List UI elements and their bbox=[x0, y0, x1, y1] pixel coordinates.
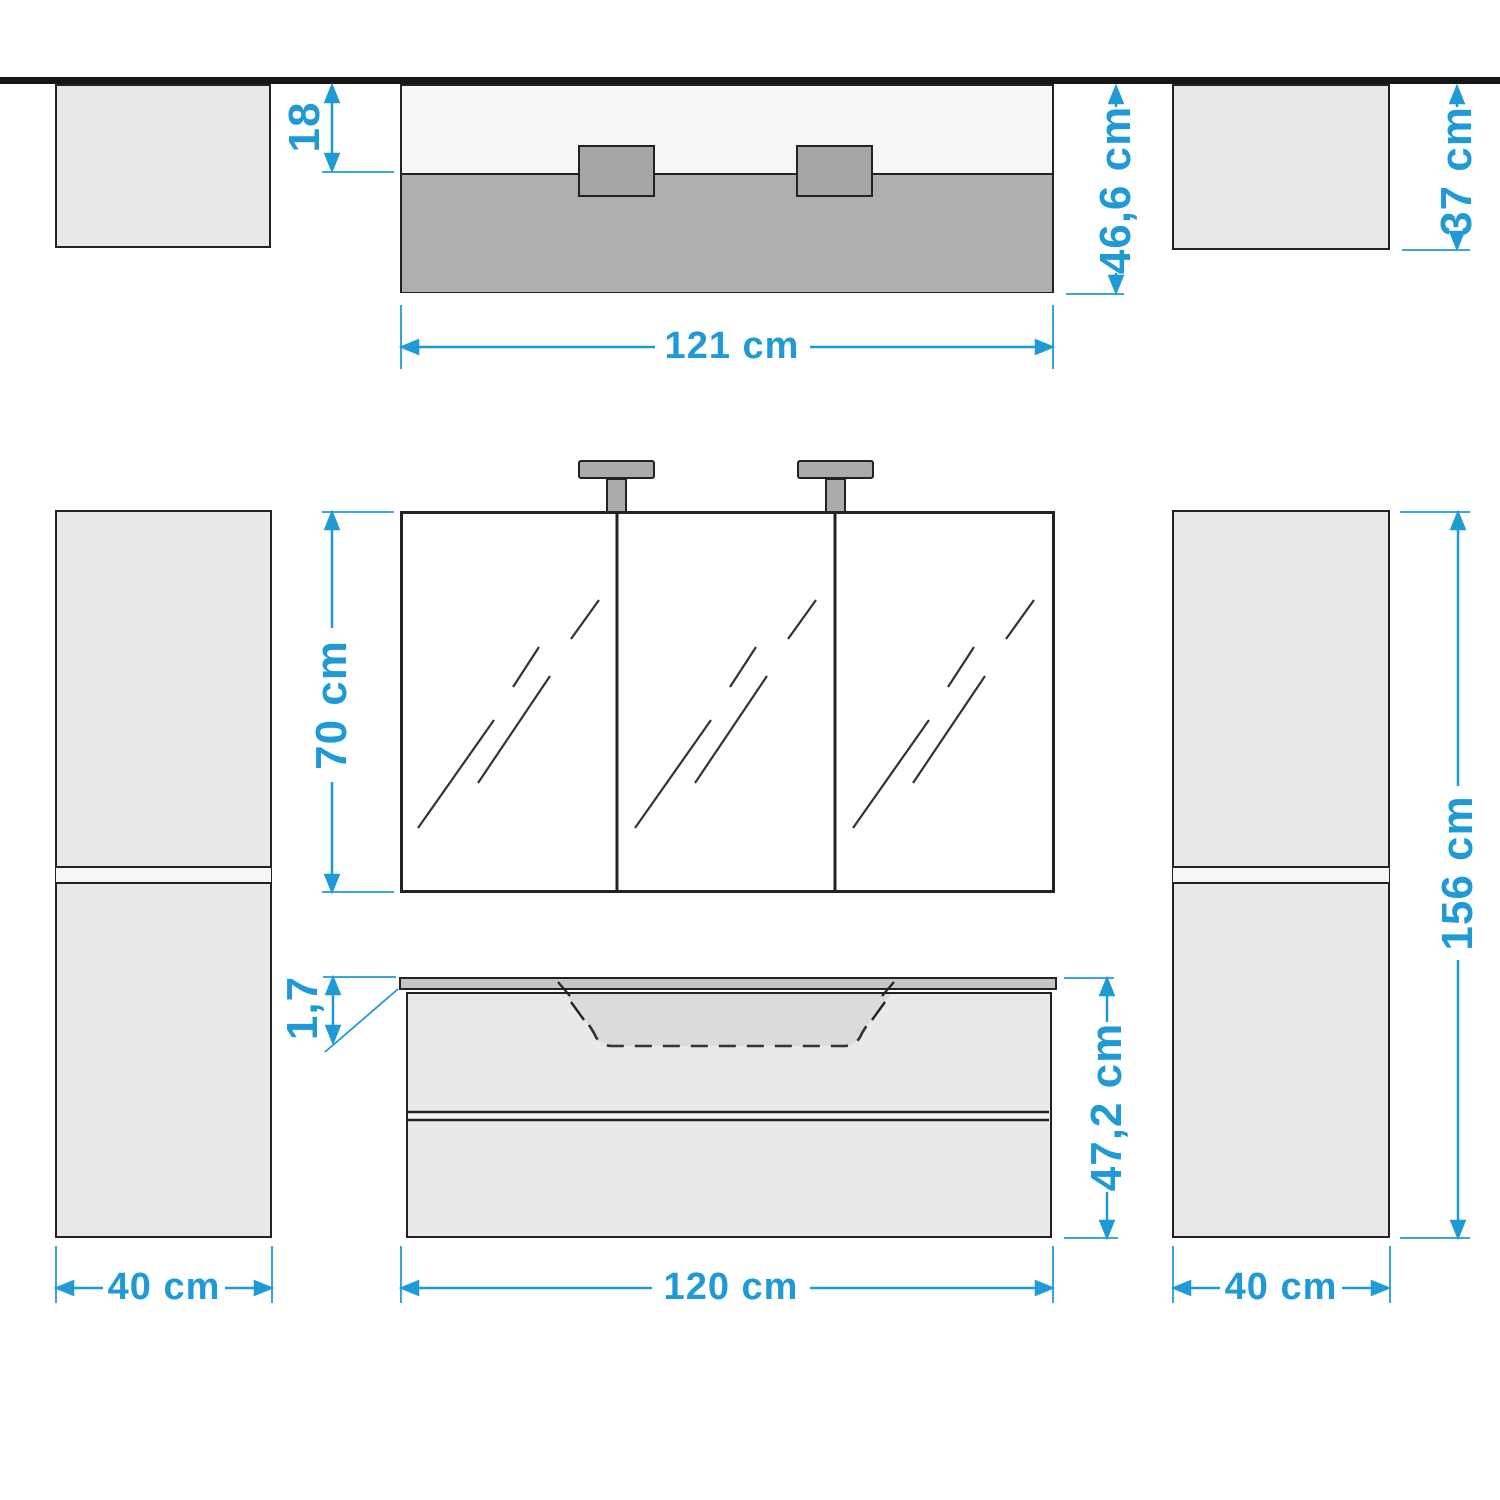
dim-mirror-offset-depth bbox=[322, 86, 394, 172]
label-side-cabinet-depth: 37 cm bbox=[1435, 106, 1479, 236]
label-vanity-height: 47,2 cm bbox=[1085, 1023, 1129, 1191]
label-vanity-width: 120 cm bbox=[664, 1268, 799, 1306]
dimension-drawing-sheet: 18 46,6 cm 37 cm 121 cm 70 cm 156 cm 1,7… bbox=[0, 0, 1500, 1500]
label-countertop-thickness: 1,7 bbox=[281, 976, 325, 1040]
basin-corner-ticks bbox=[558, 982, 894, 996]
label-mirror-offset-depth: 18 bbox=[283, 102, 327, 153]
label-set-width-top: 121 cm bbox=[665, 327, 800, 365]
label-left-cabinet-width: 40 cm bbox=[108, 1268, 221, 1306]
dim-countertop-thickness bbox=[323, 977, 398, 1052]
label-right-cabinet-width: 40 cm bbox=[1225, 1268, 1338, 1306]
label-mirror-cabinet-height: 70 cm bbox=[310, 640, 354, 770]
label-total-depth: 46,6 cm bbox=[1094, 106, 1138, 274]
label-side-cabinet-height: 156 cm bbox=[1436, 795, 1480, 950]
